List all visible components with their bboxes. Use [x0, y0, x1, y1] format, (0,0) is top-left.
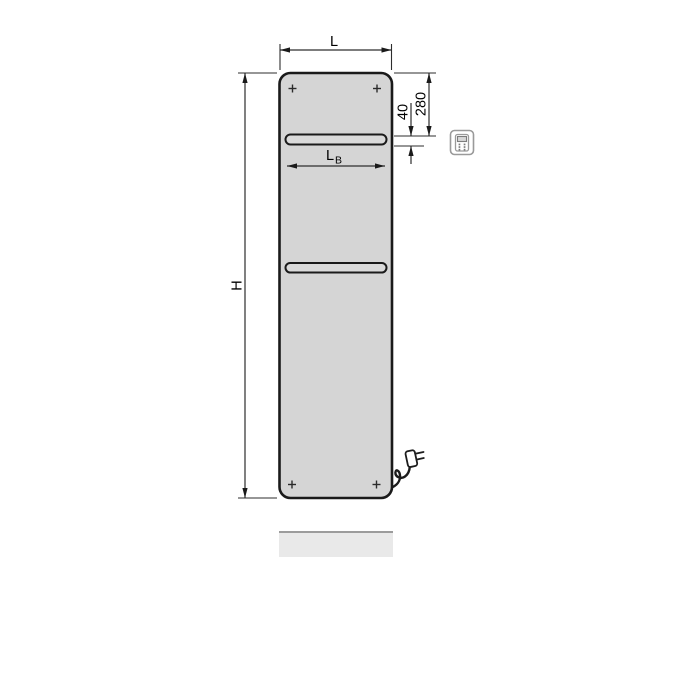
- towel-rail-slot-bottom: [286, 263, 387, 273]
- floor-shadow: [279, 532, 393, 557]
- label-slot-width: L: [326, 148, 334, 164]
- arrowhead-up: [242, 73, 247, 83]
- power-cable: [391, 467, 410, 489]
- arrowhead-down: [408, 126, 413, 136]
- control-unit-icon: [451, 131, 474, 155]
- label-slot-top-offset: 280: [414, 92, 430, 116]
- label-overall-width: L: [330, 34, 338, 50]
- arrowhead-right: [382, 47, 392, 52]
- radiator-dimension-diagram: L H 280 40 L B: [0, 0, 700, 700]
- dimension-overall-width: L: [280, 34, 392, 70]
- dimension-overall-height: H: [230, 73, 278, 498]
- floor-shadow-fill: [279, 532, 393, 557]
- power-plug-icon: [405, 448, 426, 467]
- diagram-canvas: L H 280 40 L B: [0, 0, 700, 700]
- label-slot-height: 40: [396, 104, 412, 120]
- arrowhead-down: [426, 126, 431, 136]
- label-overall-height: H: [230, 280, 246, 290]
- arrowhead-left: [280, 47, 290, 52]
- label-slot-width-subscript: B: [335, 155, 342, 167]
- arrowhead-up: [426, 73, 431, 83]
- arrowhead-down: [242, 488, 247, 498]
- towel-rail-slot-top: [286, 135, 387, 145]
- arrowhead-up: [408, 146, 413, 156]
